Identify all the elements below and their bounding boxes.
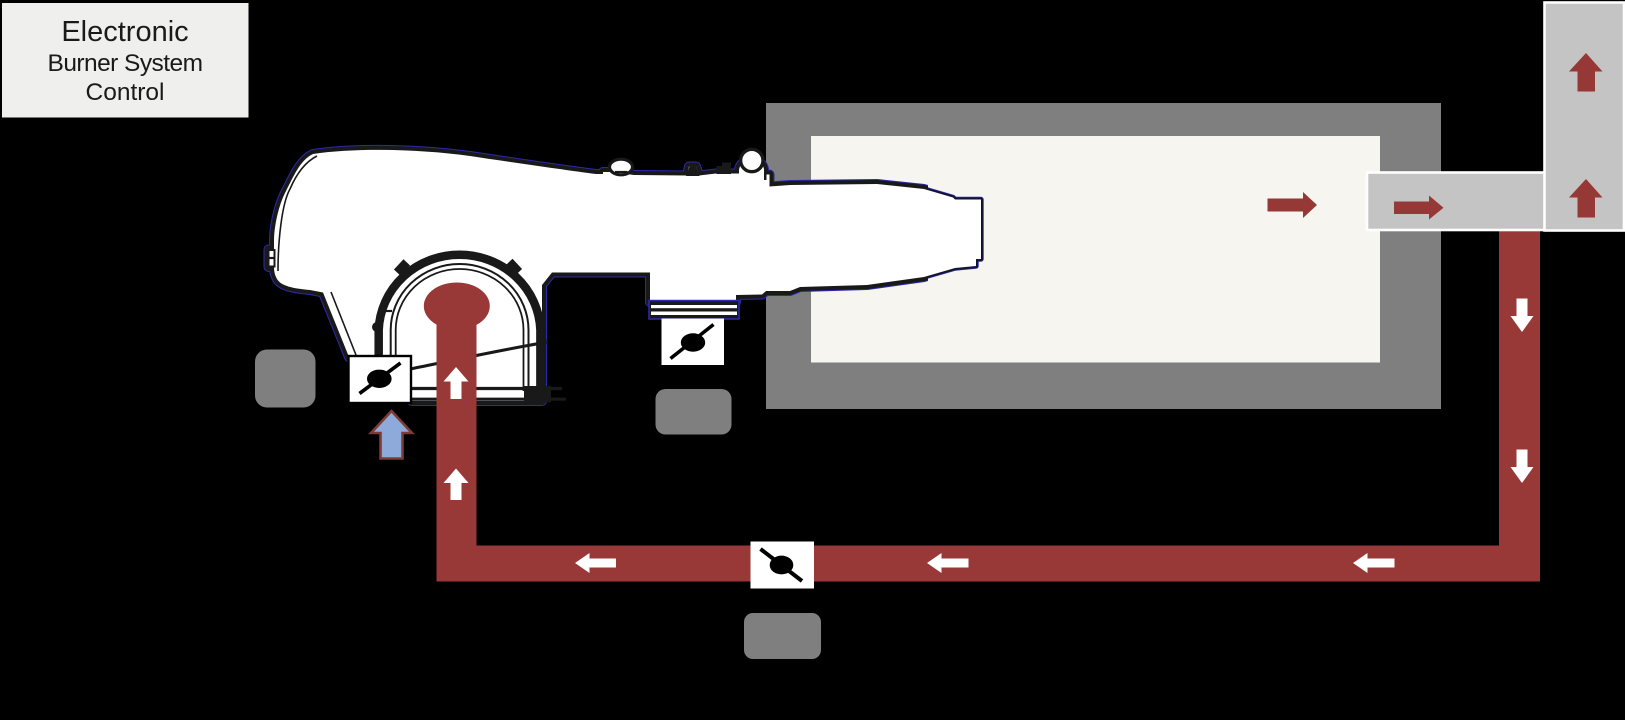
svg-text:Electronic: Electronic	[61, 16, 188, 48]
svg-text:Control: Control	[86, 79, 165, 106]
svg-text:Burner System: Burner System	[48, 50, 203, 77]
